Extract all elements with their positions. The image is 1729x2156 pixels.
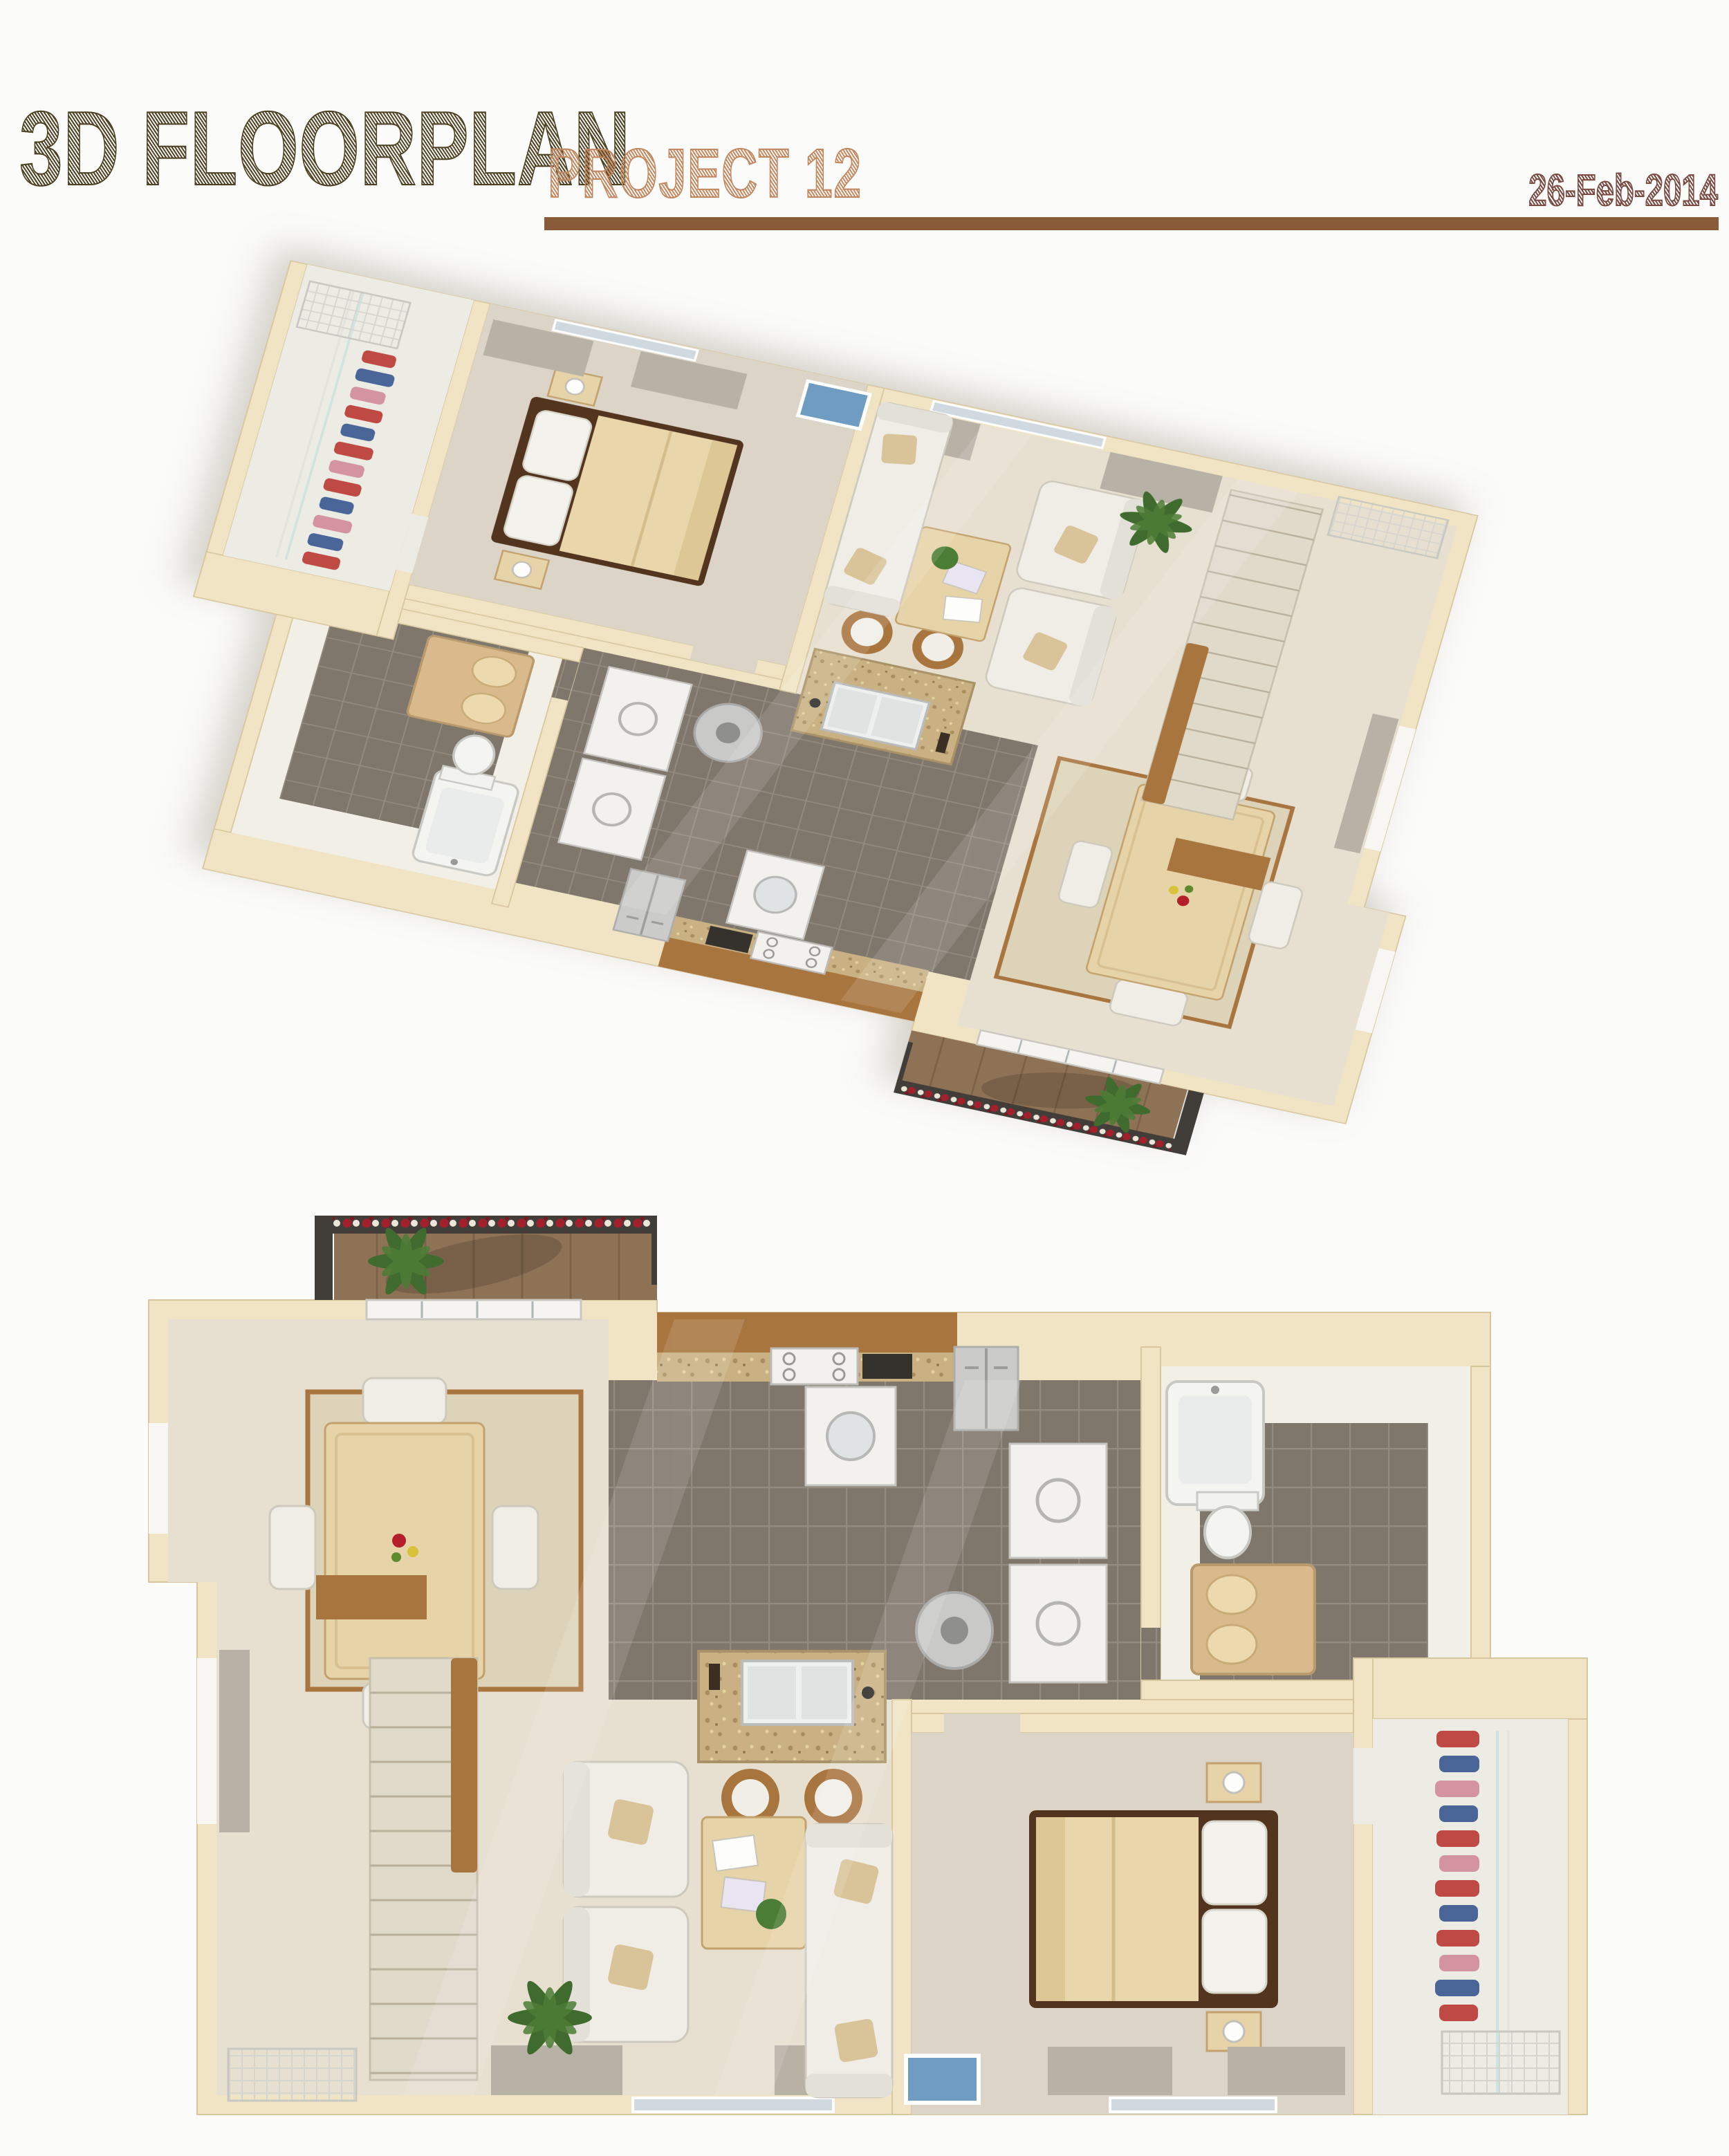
divider-rule [544,217,1719,230]
floorplan-3d-view [52,245,1520,1186]
floorplan-top-drawing [149,1216,1643,2121]
floorplan-top-view [149,1216,1643,2121]
floorplan-drawing-instance [149,1216,1587,2115]
project-subtitle: PROJECT 12 [548,134,862,214]
floorplan-drawing-instance [100,261,1519,1186]
floorplan-3d-drawing [52,245,1520,1186]
date-label: 26-Feb-2014 [1528,165,1718,216]
floorplan-sheet: 3D FLOORPLAN PROJECT 12 26-Feb-2014 [0,0,1729,2156]
page-title: 3D FLOORPLAN [19,89,631,210]
